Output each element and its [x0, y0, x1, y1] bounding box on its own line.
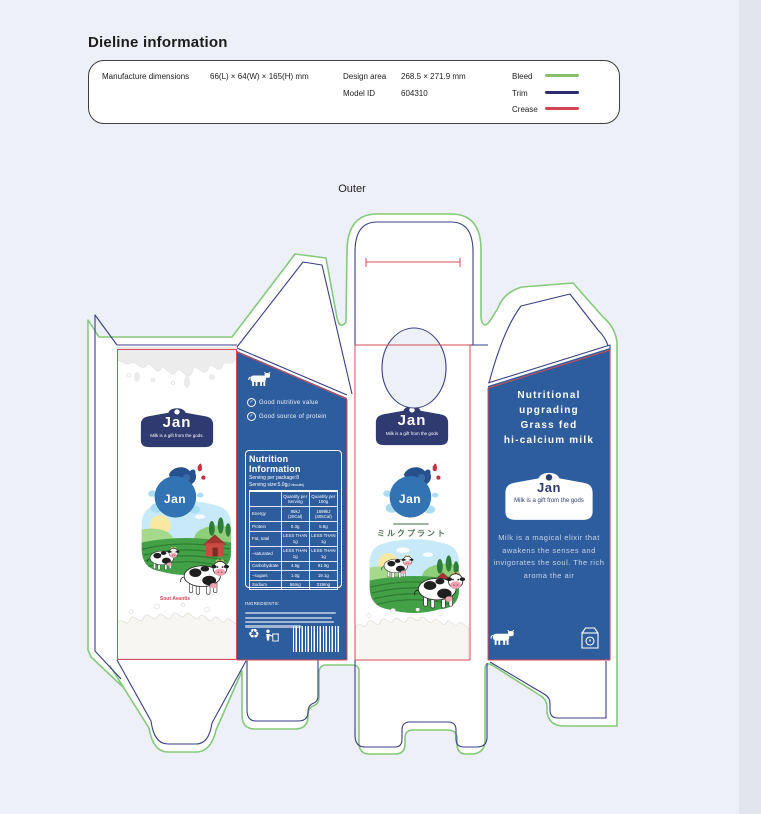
- dieline-spec-page: Dieline information Manufacture dimensio…: [0, 0, 761, 814]
- dieline-info-panel: Manufacture dimensions 66(L) × 64(W) × 1…: [88, 60, 620, 124]
- model-id-label: Model ID: [343, 89, 375, 98]
- legend-trim: Trim: [512, 89, 602, 97]
- page-title: Dieline information: [88, 34, 228, 51]
- design-area-value: 268.5 × 271.9 mm: [401, 72, 466, 81]
- legend-crease: Crease: [512, 105, 602, 113]
- design-area-label: Design area: [343, 72, 386, 81]
- manufacture-dimensions-label: Manufacture dimensions: [102, 72, 189, 81]
- crease-line-swatch: [545, 107, 579, 110]
- dieline-svg: [80, 210, 630, 800]
- outer-section-label: Outer: [322, 183, 382, 195]
- dieline-drawing: Jan Milk is a gift from the gods. Jan So…: [80, 210, 630, 800]
- manufacture-dimensions-value: 66(L) × 64(W) × 165(H) mm: [210, 72, 309, 81]
- small-text-line: [393, 523, 429, 525]
- page-edge-strip: [739, 0, 761, 814]
- model-id-value: 604310: [401, 89, 428, 98]
- bleed-line-swatch: [545, 74, 579, 77]
- nutrition-panel-bg: [237, 351, 347, 660]
- trim-line-swatch: [545, 91, 579, 94]
- legend-bleed: Bleed: [512, 72, 602, 80]
